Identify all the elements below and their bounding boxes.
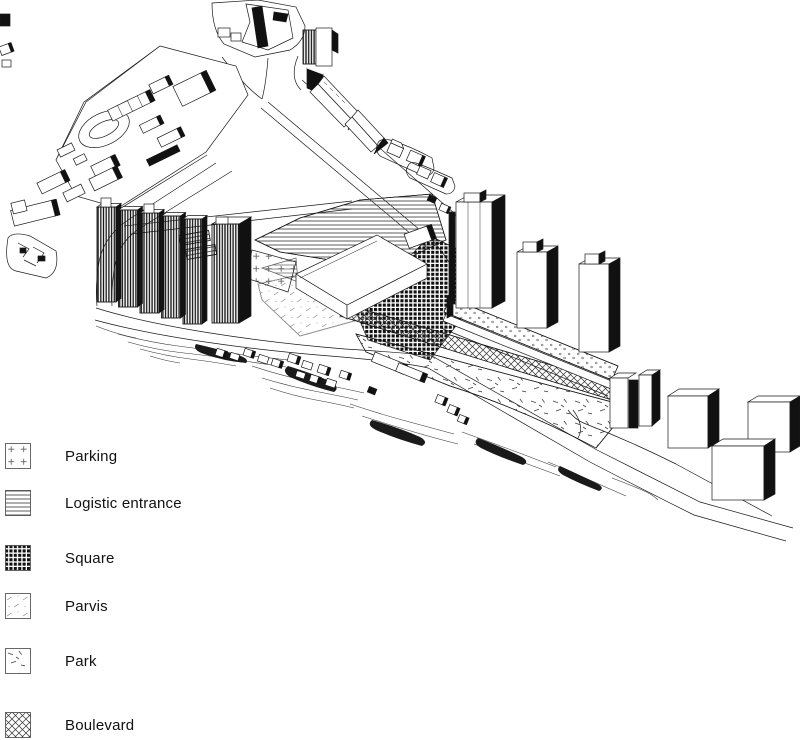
northeast-buildings	[303, 28, 455, 214]
north-block	[212, 0, 305, 57]
tower-east-3	[579, 251, 620, 352]
legend-swatch-icon	[5, 712, 31, 738]
legend-label: Boulevard	[65, 717, 134, 734]
legend-swatch-icon	[5, 593, 31, 619]
southeast-boxes	[610, 370, 800, 500]
legend-item: Boulevard	[5, 712, 325, 738]
west-buildings	[0, 14, 85, 226]
legend-item: Park	[5, 648, 325, 674]
legend-item: Square	[5, 545, 325, 571]
legend-swatch-icon	[5, 443, 31, 469]
tower-east-2	[517, 239, 558, 328]
legend-label: Logistic entrance	[65, 495, 182, 512]
legend-label: Parvis	[65, 598, 108, 615]
legend: Parking Logistic entrance Square Parvis …	[5, 443, 325, 738]
tower-east-1	[449, 190, 505, 308]
legend-swatch-icon	[5, 490, 31, 516]
site-plan-figure: Parking Logistic entrance Square Parvis …	[0, 0, 800, 740]
parking-area	[246, 250, 296, 292]
legend-swatch-icon	[5, 648, 31, 674]
tower-cluster-west	[97, 198, 251, 324]
legend-swatch-icon	[5, 545, 31, 571]
legend-label: Square	[65, 550, 115, 567]
legend-item: Parvis	[5, 593, 325, 619]
legend-label: Park	[65, 653, 97, 670]
legend-item: Logistic entrance	[5, 490, 325, 516]
campus-block	[56, 46, 248, 208]
legend-item: Parking	[5, 443, 325, 469]
legend-label: Parking	[65, 448, 117, 465]
west-triangle-block	[7, 234, 57, 278]
